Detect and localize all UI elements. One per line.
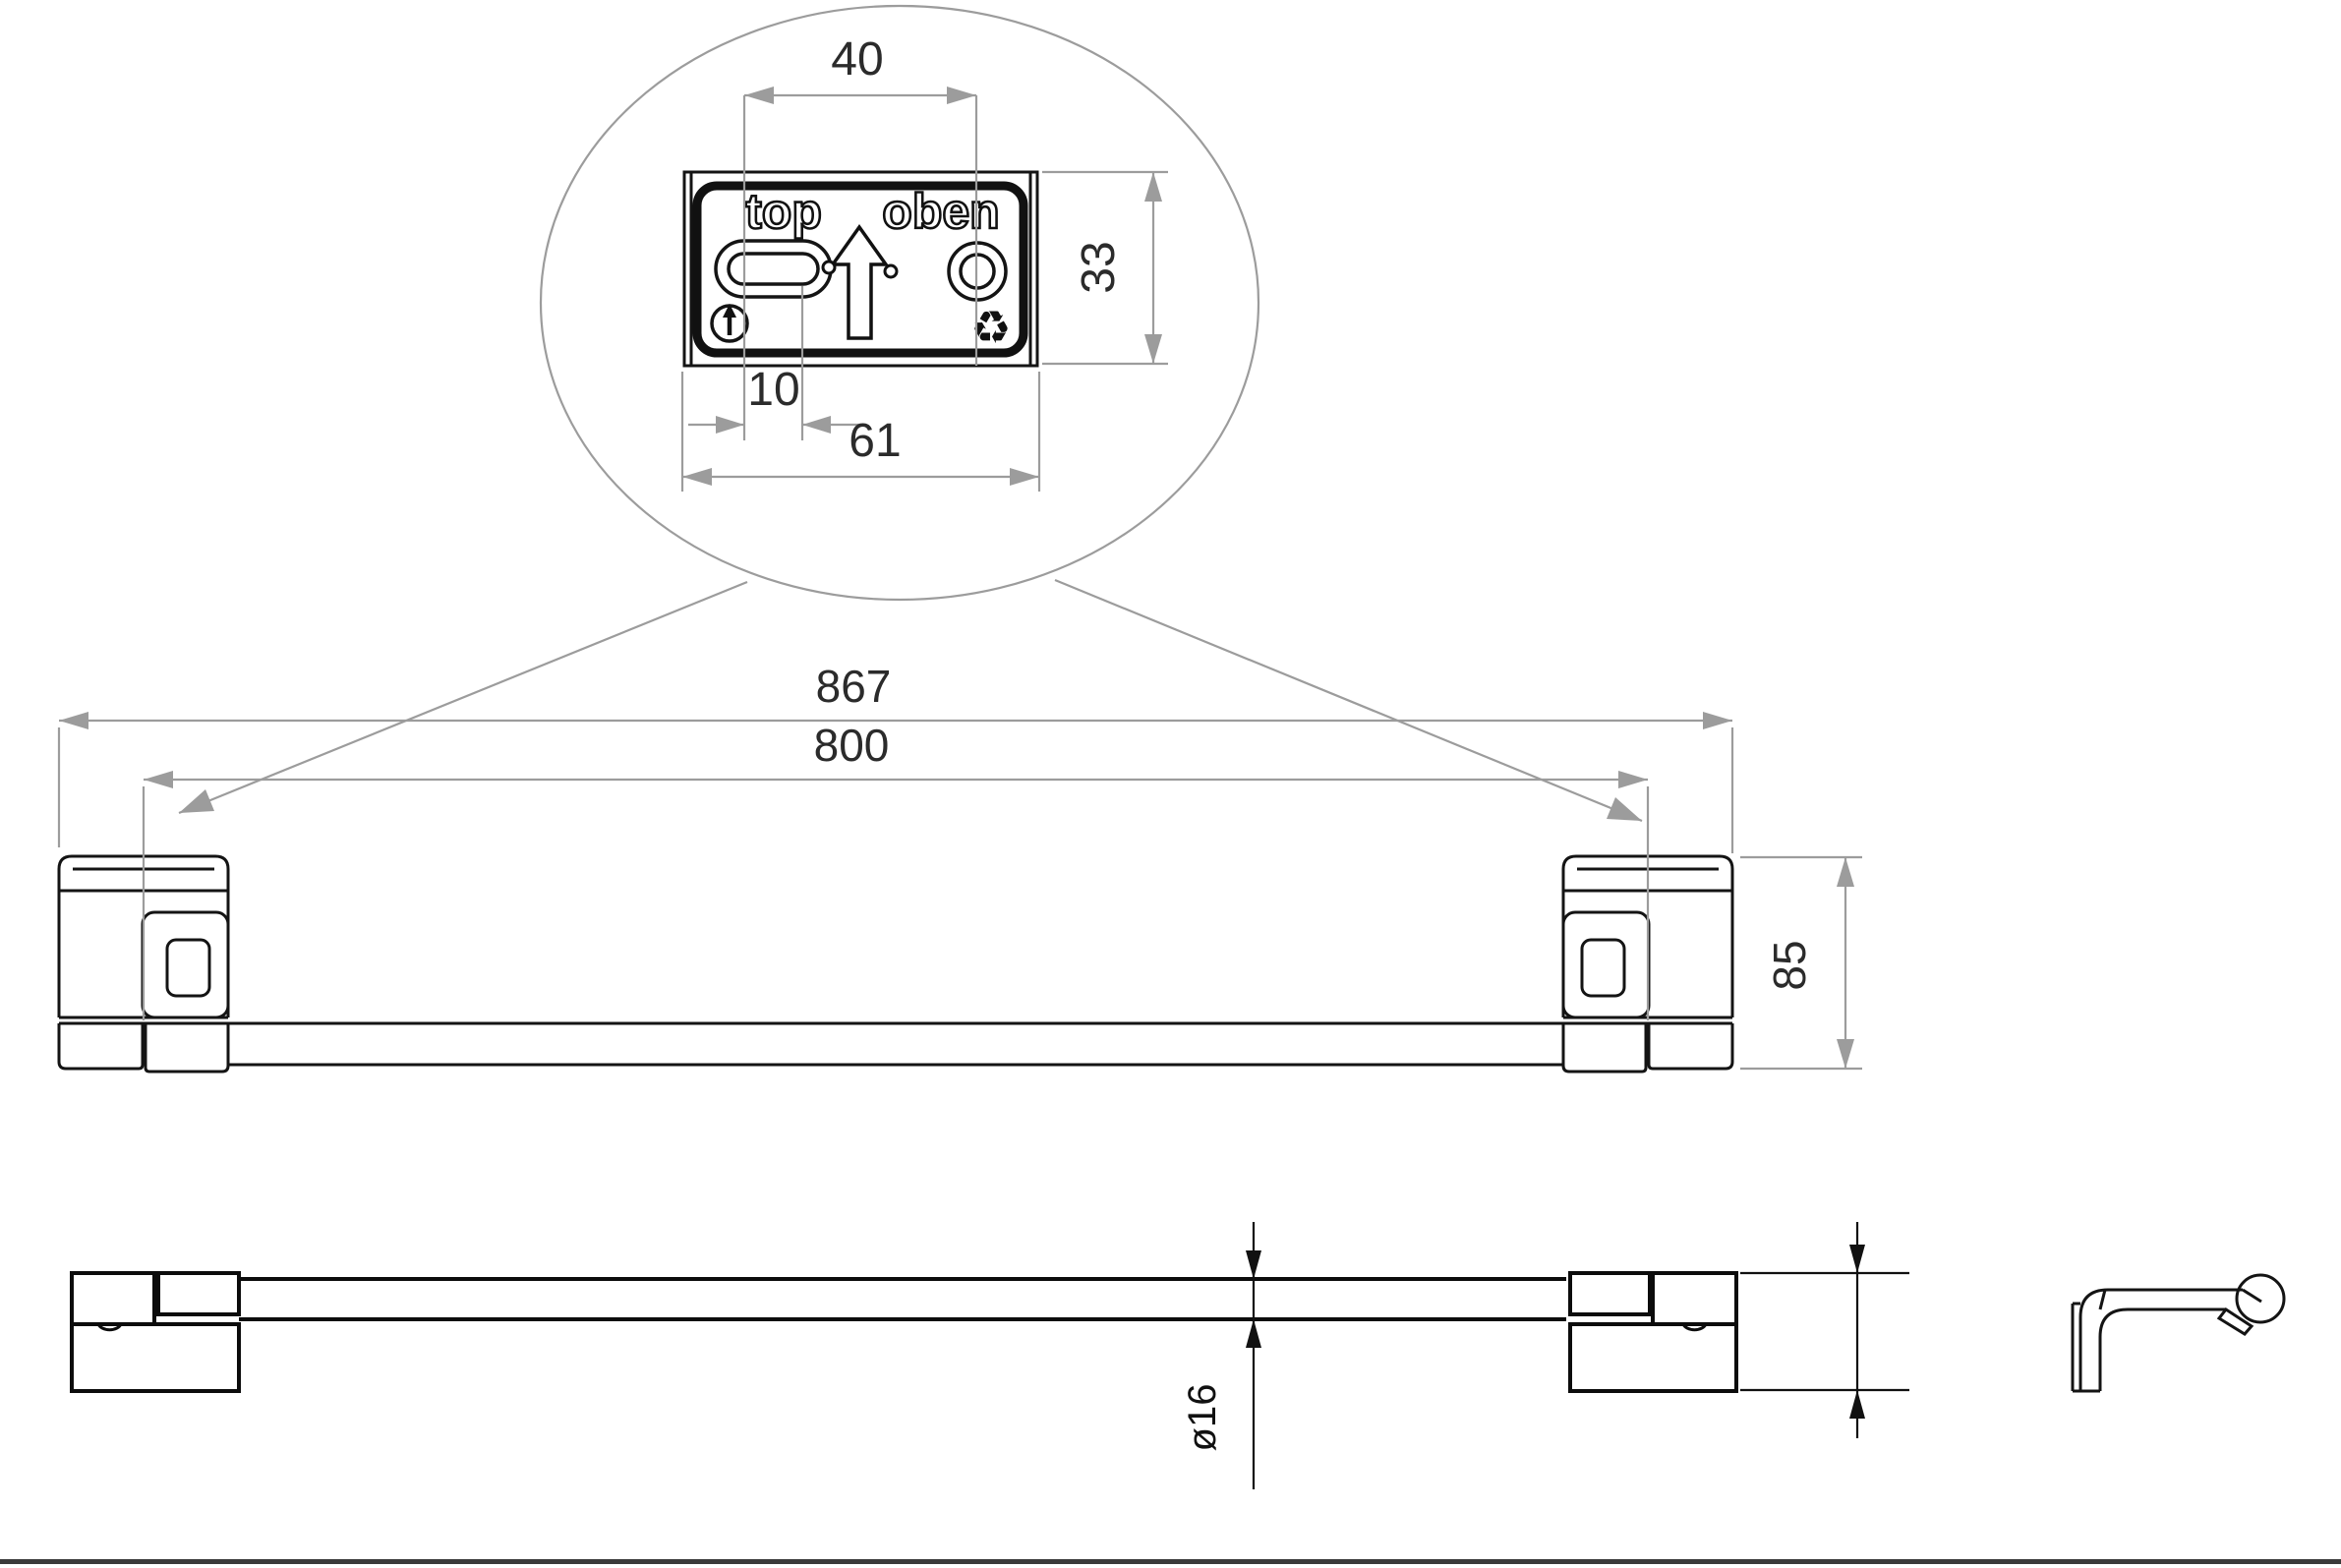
arrow-61-right-icon <box>1010 468 1039 486</box>
arrow-85-bottom-icon <box>1837 1039 1854 1069</box>
arrow-867-left-icon <box>59 712 88 729</box>
plate-label-top: top <box>745 184 822 239</box>
side-arm-inner <box>2100 1309 2226 1391</box>
arrow-depth-bottom-icon <box>1849 1390 1865 1419</box>
up-arrow-icon <box>833 227 886 338</box>
arrow-depth-top-icon <box>1849 1245 1865 1273</box>
dim-text-85: 85 <box>1764 940 1815 990</box>
detail-leader-left-arrow-icon <box>179 789 214 813</box>
this-side-up-icon <box>712 304 747 341</box>
left-plan-arm-block <box>158 1273 239 1314</box>
right-plan-wall-plate <box>1570 1324 1736 1391</box>
arrow-85-top-icon <box>1837 857 1854 887</box>
right-bracket-plan <box>1570 1273 1736 1391</box>
slot-inner-icon <box>729 254 818 284</box>
arrow-40-right-icon <box>947 87 976 104</box>
side-arm-outer <box>2080 1290 2243 1391</box>
arrow-800-right-icon <box>1618 771 1648 788</box>
right-bracket-hook-outer <box>1563 912 1649 1017</box>
right-bracket-foot-inner <box>1563 1023 1646 1072</box>
dim-text-33: 33 <box>1073 241 1125 293</box>
left-plan-wall-plate <box>72 1324 239 1391</box>
plan-depth-dimension <box>1740 1222 1909 1438</box>
dim-text-10: 10 <box>747 364 799 416</box>
left-bracket-foot-inner <box>146 1023 228 1072</box>
detail-dimensions: 40 33 10 61 <box>682 33 1168 492</box>
bar-diameter-dimension: ø16 <box>1181 1222 1261 1489</box>
arrow-10-left-icon <box>716 416 744 434</box>
pivot-dot-right-icon <box>885 265 897 277</box>
side-bar-section-circle <box>2237 1275 2284 1322</box>
side-arm-seam <box>2100 1290 2105 1309</box>
right-plan-outer-block <box>1653 1273 1736 1324</box>
pivot-dot-left-icon <box>823 261 835 273</box>
mounting-plate-detail: top oben ♻ <box>684 172 1037 366</box>
detail-balloon <box>179 6 1642 821</box>
arrow-800-left-icon <box>144 771 173 788</box>
slot-outer-icon <box>716 241 831 297</box>
dim-text-40: 40 <box>831 33 883 86</box>
left-bracket-foot-outer <box>59 1023 143 1069</box>
front-view: 867 800 85 <box>59 661 1862 1072</box>
arrow-61-left-icon <box>682 468 712 486</box>
arrow-33-bottom-icon <box>1144 334 1162 364</box>
left-plan-outer-block <box>72 1273 154 1324</box>
arrow-10-right-icon <box>802 416 831 434</box>
side-view <box>2073 1275 2284 1391</box>
page-bottom-border <box>0 1559 2341 1564</box>
arrow-40-left-icon <box>744 87 774 104</box>
arrow-33-top-icon <box>1144 172 1162 202</box>
right-bracket-foot-outer <box>1649 1023 1732 1069</box>
detail-leader-right <box>1055 580 1642 821</box>
detail-leader-right-arrow-icon <box>1607 797 1642 821</box>
side-arm-tip-top <box>2243 1290 2261 1302</box>
dim-text-61: 61 <box>849 415 901 467</box>
technical-drawing-canvas: top oben ♻ 40 33 <box>0 0 2341 1568</box>
arrow-d16-top-icon <box>1246 1250 1261 1279</box>
left-bracket-plan <box>72 1273 239 1391</box>
arrow-867-right-icon <box>1703 712 1732 729</box>
plate-label-oben: oben <box>882 184 999 239</box>
detail-leader-left <box>179 582 747 813</box>
dim-text-d16: ø16 <box>1181 1384 1224 1452</box>
right-plan-arm-block <box>1570 1273 1650 1314</box>
plan-view: ø16 <box>72 1222 1909 1489</box>
side-arm-claw <box>2219 1309 2252 1334</box>
technical-drawing-page: top oben ♻ 40 33 <box>0 0 2341 1568</box>
dim-text-867: 867 <box>816 661 892 712</box>
dim-text-800: 800 <box>814 720 890 771</box>
arrow-d16-bottom-icon <box>1246 1319 1261 1348</box>
left-bracket-hook-outer <box>143 912 228 1017</box>
